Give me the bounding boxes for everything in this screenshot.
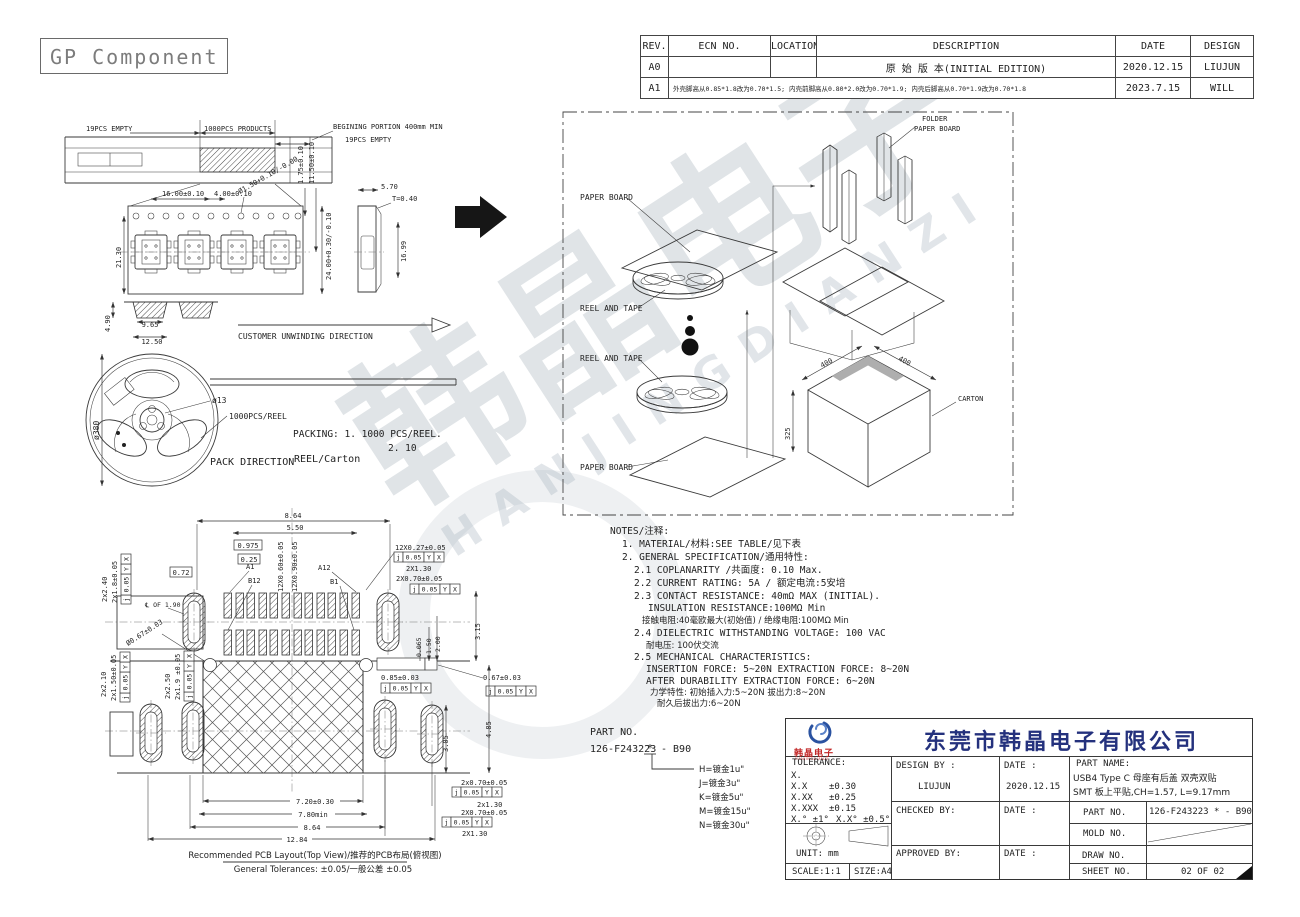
dim-2x150: 2x1.50±0.05 — [110, 655, 118, 701]
folder-paper-board-label: PAPER BOARD — [914, 125, 960, 133]
dim-315: 3.15 — [474, 623, 482, 640]
dim-485: 4.85 — [485, 721, 493, 738]
unwind-label: CUSTOMER UNWINDING DIRECTION — [238, 332, 373, 341]
tape-empty-right-label: 19PCS EMPTY — [345, 136, 392, 144]
carton-dim-w: 400 — [819, 357, 834, 370]
reel-and-tape-label-1: REEL AND TAPE — [580, 304, 643, 313]
pin-b1: B1 — [330, 578, 338, 586]
dim-2x130b: 2X1.30 — [462, 830, 487, 838]
sheet-corner-mark — [1236, 866, 1252, 879]
note-line: 2.4 DIELECTRIC WITHSTANDING VOLTAGE: 100… — [634, 628, 886, 639]
dim-2x130-top: 2X1.30 — [406, 565, 431, 573]
paper-board-label-1: PAPER BOARD — [580, 193, 633, 202]
reel-and-tape-label-2: REEL AND TAPE — [580, 354, 643, 363]
note-line: INSULATION RESISTANCE:100MΩ Min — [648, 603, 825, 614]
dim-12x090: 12X0.90±0.05 — [291, 541, 299, 592]
unwinding-direction: CUSTOMER UNWINDING DIRECTION — [238, 318, 450, 341]
mold-no-diagonal — [1148, 824, 1251, 842]
dim-2x070-top: 2X0.70±0.05 — [396, 575, 442, 583]
dim-edge: 1.75±0.10 — [297, 146, 305, 184]
pin-a1: A1 — [246, 563, 254, 571]
plating-option-m: M=镀金15u" — [699, 806, 751, 817]
dim-200: 2.00 — [434, 636, 442, 652]
reel-qty-label: 1000PCS/REEL — [229, 412, 287, 421]
drawing-sheet: 韩晶电子 HANJINGDIANZI GP Component REV. ECN… — [0, 0, 1300, 917]
note-line: 2.5 MECHANICAL CHARACTERISTICS: — [634, 652, 811, 663]
note-line: 2.1 COPLANARITY /共面度: 0.10 Max. — [634, 564, 823, 576]
tape-strip-view: 19PCS EMPTY 1000PCS PRODUCTS BEGINING PO… — [65, 120, 443, 206]
dim-2x250: 2x2.50 — [164, 674, 172, 699]
packing-note: PACKING: 1. 1000 PCS/REEL. 2. 10 PACK DI… — [210, 429, 442, 468]
dim-12x027: 12X0.27±0.05 — [395, 544, 446, 552]
company-logo-icon — [810, 723, 830, 742]
pin-a12: A12 — [318, 564, 331, 572]
dim-hole-067: Ø0.67±0.03 — [125, 618, 165, 648]
dim-0065: 0.065 — [415, 637, 423, 657]
pack-direction-label: PACK DIRECTION — [210, 457, 294, 468]
dim-reel-width: 24.00+0.30/-0.10 — [325, 213, 333, 280]
dim-0975: 0.975 — [237, 542, 258, 550]
note-line: 力学特性: 初始插入力:5~20N 拔出力:8~20N — [650, 687, 825, 698]
note-line: 2.3 CONTACT RESISTANCE: 40mΩ MAX (INITIA… — [634, 591, 880, 602]
dim-pocket-depth: 4.90 — [104, 315, 112, 332]
part-no-label: PART NO. — [590, 727, 638, 738]
dim-centerline-190: ℄ OF 1.90 — [144, 601, 181, 609]
tape-begining-label: BEGINING PORTION 400mm MIN — [333, 123, 443, 131]
plating-option-n: N=镀金30u" — [699, 820, 750, 831]
note-line: 接触电阻:40毫欧最大(初始值) / 绝缘电阻:100MΩ Min — [642, 615, 849, 626]
dim-side-width: 5.70 — [381, 183, 398, 191]
paper-board-label-2: PAPER BOARD — [580, 463, 633, 472]
dim-pocket-outer: 12.50 — [141, 338, 162, 346]
drawing-canvas: j 0.05 Y X — [0, 0, 1300, 917]
plating-option-j: J=镀金3u" — [698, 778, 740, 789]
tape-empty-left-label: 19PCS EMPTY — [86, 125, 133, 133]
dim-085: 0.85±0.03 — [381, 674, 419, 682]
dim-12x060: 12X0.60±0.05 — [277, 541, 285, 592]
plating-option-k: K=镀金5u" — [699, 792, 743, 803]
dim-2x070a: 2x0.70±0.05 — [461, 779, 507, 787]
dim-2x130a: 2x1.30 — [477, 801, 502, 809]
note-line: 耐久后拔出力:6~20N — [657, 698, 741, 709]
flow-arrow-icon — [455, 196, 507, 238]
pcb-tolerances: General Tolerances: ±0.05/一般公差 ±0.05 — [234, 864, 412, 875]
dim-side-height: 16.99 — [400, 241, 408, 262]
part-no-suffix: - B90 — [661, 744, 691, 755]
pin-b12: B12 — [248, 577, 261, 585]
dim-780: 7.80min — [298, 811, 328, 819]
dim-305: 3.05 — [442, 735, 450, 752]
carton-label: CARTON — [958, 395, 983, 403]
pocket-cross-section: 9.65 12.50 4.90 — [104, 302, 218, 346]
tape-side-view: 5.70 T=0.40 16.99 — [354, 183, 417, 292]
tape-products-label: 1000PCS PRODUCTS — [204, 125, 271, 133]
note-line: 耐电压: 100伏交流 — [646, 640, 719, 651]
dim-2x19: 2x1.9 ±0.05 — [174, 654, 182, 700]
plating-option-h: H=镀金1u" — [699, 764, 744, 775]
tape-products-region — [200, 148, 275, 172]
notes-title: NOTES/注释: — [610, 525, 669, 537]
packing-illustration: PAPER BOARD REEL AND TAPE REEL AND TAPE … — [563, 112, 1013, 515]
note-line: 2.2 CURRENT RATING: 5A / 额定电流:5安培 — [634, 577, 846, 589]
dim-864-bottom: 8.64 — [304, 824, 321, 832]
folder-label: FOLDER — [922, 115, 948, 123]
dim-2x240: 2x2.40 — [101, 577, 109, 602]
dim-center: 11.50±0.10 — [308, 142, 316, 184]
pcb-bottom-view: 2x2.10 2x1.50±0.05 2x2.50 2x1.9 ±0.05 3.… — [100, 651, 507, 875]
dim-720: 7.20±0.30 — [296, 798, 334, 806]
note-line: AFTER DURABILITY EXTRACTION FORCE: 6~20N — [646, 676, 875, 687]
note-line: 2. GENERAL SPECIFICATION/通用特性: — [622, 551, 809, 563]
dim-072: 0.72 — [173, 569, 190, 577]
dim-864: 8.64 — [285, 512, 302, 520]
dim-thickness: T=0.40 — [392, 195, 417, 203]
dim-1284: 12.84 — [286, 836, 307, 844]
pack-mode-label: REEL/Carton — [294, 454, 360, 465]
dim-pocket-width: 9.65 — [142, 321, 159, 329]
dim-reel-diameter: ø380 — [92, 421, 101, 440]
carton-dim-h: 325 — [784, 427, 792, 440]
dim-hub: ø13 — [212, 396, 227, 405]
dim-2x18: 2x1.8±0.05 — [111, 561, 119, 603]
dim-span: 16.00±0.10 — [162, 190, 204, 198]
dim-tape-width: 21.30 — [115, 247, 123, 268]
dim-2x070b: 2X0.70±0.05 — [461, 809, 507, 817]
part-number-block: PART NO. 126-F243223 * - B90 H=镀金1u" J=镀… — [590, 727, 751, 831]
part-no-star: * — [647, 743, 653, 754]
note-line: 1. MATERIAL/材料:SEE TABLE/见下表 — [622, 538, 802, 550]
dim-550: 5.50 — [287, 524, 304, 532]
pcb-caption: Recommended PCB Layout(Top View)/推荐的PCB布… — [188, 850, 441, 861]
projection-symbol — [803, 824, 888, 848]
dim-2x210: 2x2.10 — [100, 672, 108, 697]
notes-block: NOTES/注释: 1. MATERIAL/材料:SEE TABLE/见下表 2… — [610, 525, 909, 709]
note-line: INSERTION FORCE: 5~20N EXTRACTION FORCE:… — [646, 664, 909, 675]
dim-150: 1.50 — [425, 638, 433, 654]
packing-line-2: 2. 10 — [388, 443, 417, 454]
packing-line-1: PACKING: 1. 1000 PCS/REEL. — [293, 429, 442, 440]
